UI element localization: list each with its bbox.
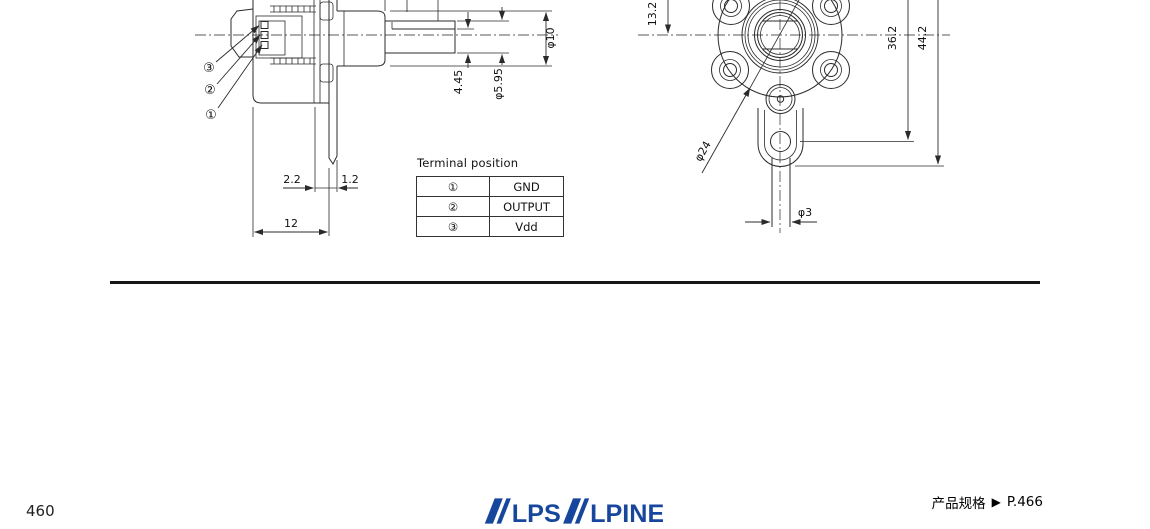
dim-center-height: 13.2 [646, 0, 668, 33]
terminal-table: ① GND ② OUTPUT ③ Vdd [416, 176, 564, 237]
dim-label-2-2: 2.2 [283, 173, 301, 186]
bottom-tab [758, 108, 803, 227]
terminal-table-title: Terminal position [417, 156, 566, 170]
dim-label-44-2: 44.2 [916, 26, 929, 51]
dim-label-4-45: 4.45 [452, 70, 465, 95]
dim-label-1-2: 1.2 [341, 173, 359, 186]
leader-label-3: ③ [203, 61, 215, 76]
dim-label-13-2: 13.2 [646, 2, 659, 27]
technical-drawing: ③ ② ① φ10 4.45 φ5.95 [0, 0, 1150, 280]
dim-label-36-2: 36.2 [886, 26, 899, 51]
dim-label-phi5-95: φ5.95 [492, 68, 505, 100]
page-number: 460 [26, 502, 55, 520]
terminal-stem [772, 158, 790, 227]
logo-a-glyph [563, 498, 589, 523]
table-row: ② OUTPUT [417, 197, 564, 217]
terminal-number-1: ① [417, 177, 490, 197]
leader-label-1: ① [205, 108, 217, 123]
dim-label-phi3: φ3 [798, 206, 812, 219]
terminal-number-3: ③ [417, 217, 490, 237]
table-row: ③ Vdd [417, 217, 564, 237]
bushing [337, 11, 385, 66]
terminal-position-block: Terminal position ① GND ② OUTPUT ③ Vdd [416, 156, 566, 237]
dim-pin-dia: φ3 [745, 206, 817, 222]
dim-bushing-dia: φ10 [390, 11, 557, 66]
alps-alpine-logo: LPS LPINE [483, 497, 663, 525]
mounting-plate [320, 0, 337, 164]
footer-spec-reference: 产品规格 ▶ P.466 [932, 492, 1043, 512]
logo-a-glyph [485, 498, 511, 523]
spec-page-ref: P.466 [1007, 494, 1043, 510]
spec-label: 产品规格 [932, 492, 986, 512]
section-divider [110, 281, 1040, 284]
terminal-signal-vdd: Vdd [490, 217, 564, 237]
leader-label-2: ② [204, 83, 216, 98]
alps-alpine-logo-svg: LPS LPINE [483, 497, 663, 525]
terminal-signal-gnd: GND [490, 177, 564, 197]
shaft [385, 0, 455, 53]
front-view: φ24 φ3 13.2 36.2 44.2 [638, 0, 950, 233]
dim-label-phi24: φ24 [692, 139, 714, 164]
dim-label-phi10: φ10 [544, 27, 557, 48]
terminal-number-2: ② [417, 197, 490, 217]
right-arrow-icon: ▶ [992, 496, 1001, 508]
dim-label-12: 12 [284, 217, 298, 230]
table-row: ① GND [417, 177, 564, 197]
logo-text-lpine: LPINE [590, 500, 663, 525]
logo-text-lps: LPS [512, 500, 561, 525]
index-boss [766, 85, 795, 114]
dim-hole-height: 36.2 [800, 0, 914, 142]
terminal-signal-output: OUTPUT [490, 197, 564, 217]
dim-body-depth: 12 [253, 107, 328, 237]
